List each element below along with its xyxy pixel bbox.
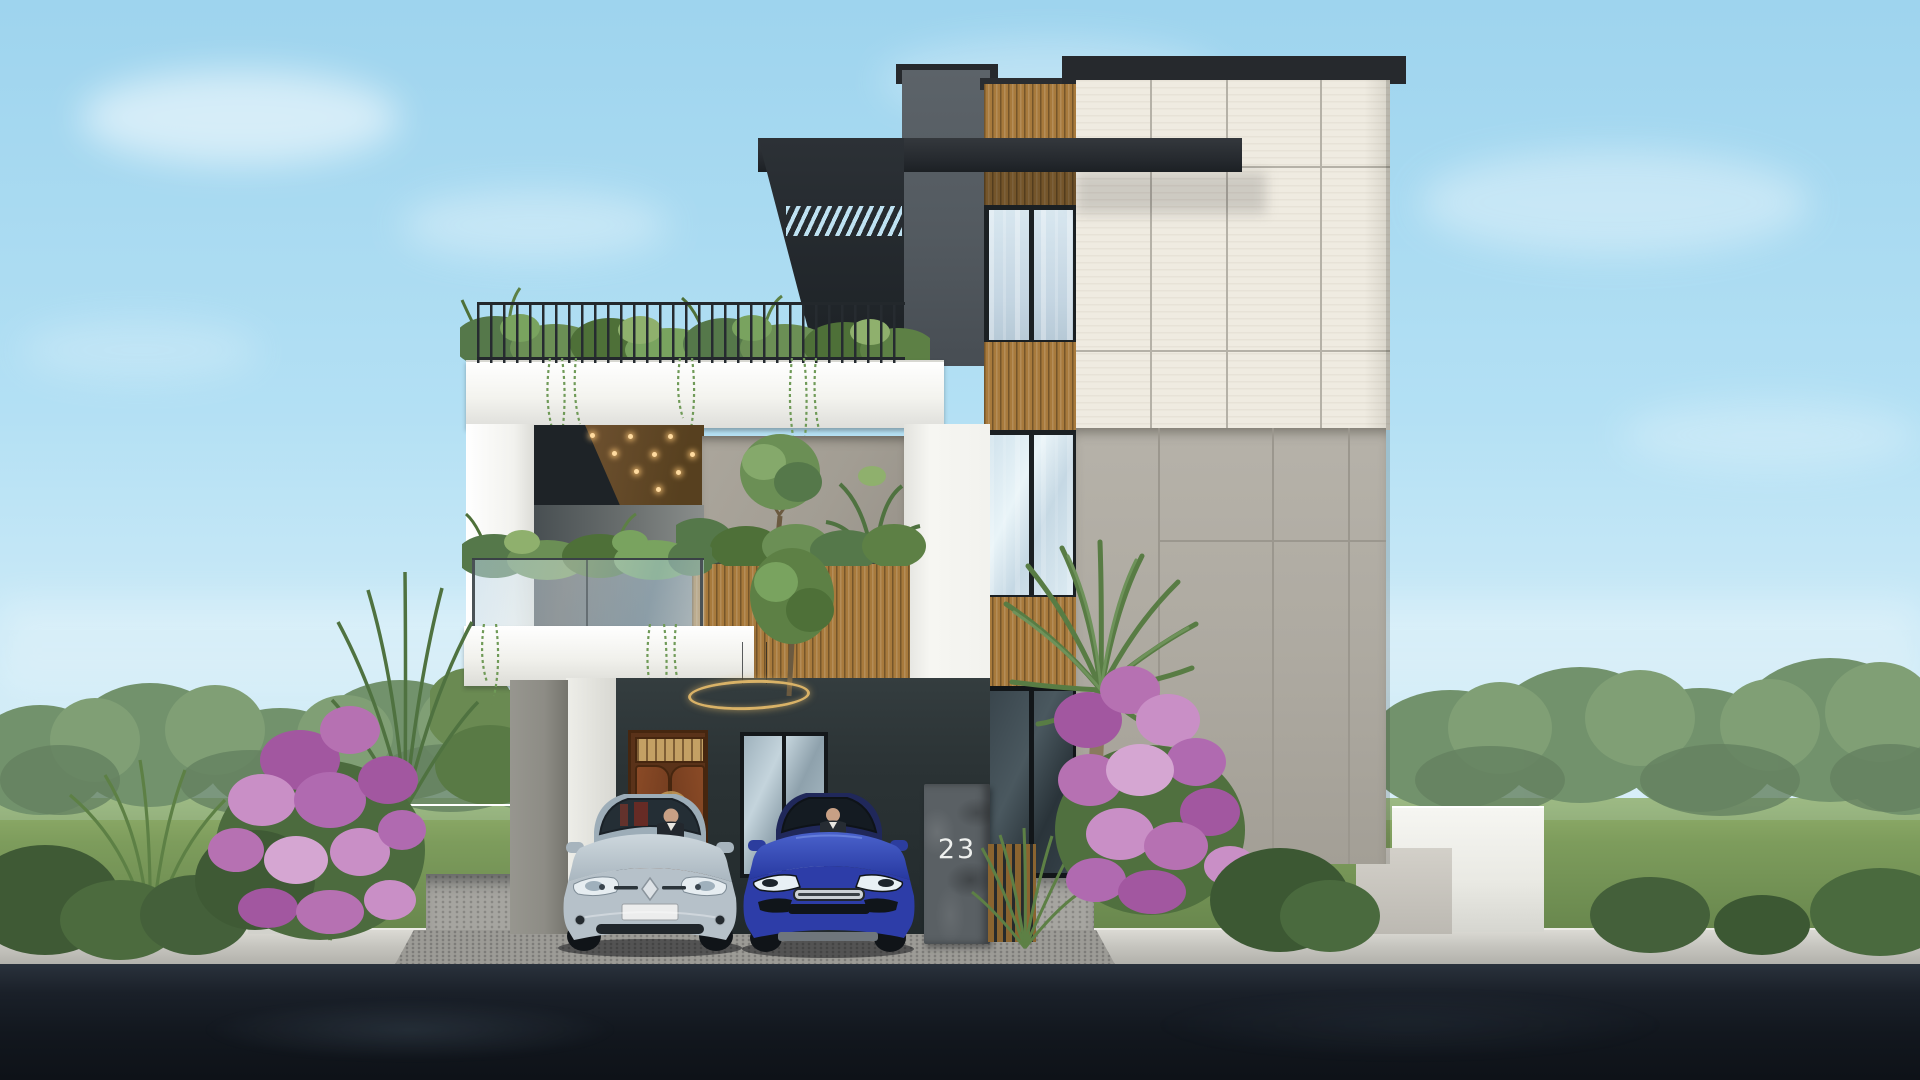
green-bush-right [1210, 848, 1380, 952]
architectural-rendering: 23 [0, 0, 1920, 1080]
silver-car [550, 786, 750, 958]
blue-car-body [744, 793, 915, 952]
silver-car-body [564, 794, 737, 951]
blue-car [736, 786, 920, 958]
foreground-planting [0, 0, 1920, 1080]
purple-bush-left [195, 706, 426, 940]
far-right-bushes [1590, 868, 1920, 956]
